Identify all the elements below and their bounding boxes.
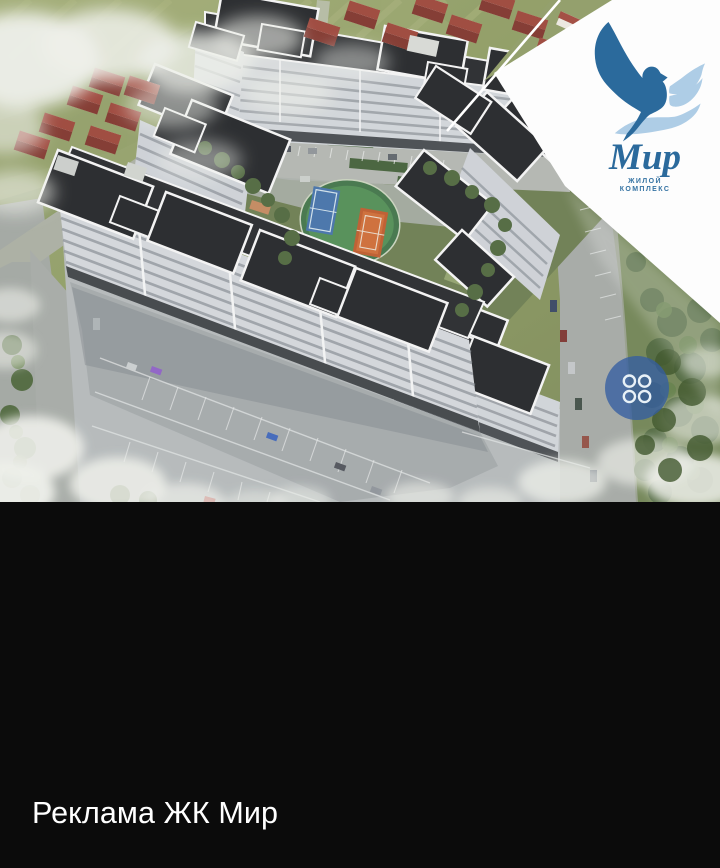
svg-text:ЖИЛОЙ: ЖИЛОЙ xyxy=(627,176,662,185)
svg-text:КОМПЛЕКС: КОМПЛЕКС xyxy=(620,186,671,193)
svg-text:Мир: Мир xyxy=(608,137,681,178)
